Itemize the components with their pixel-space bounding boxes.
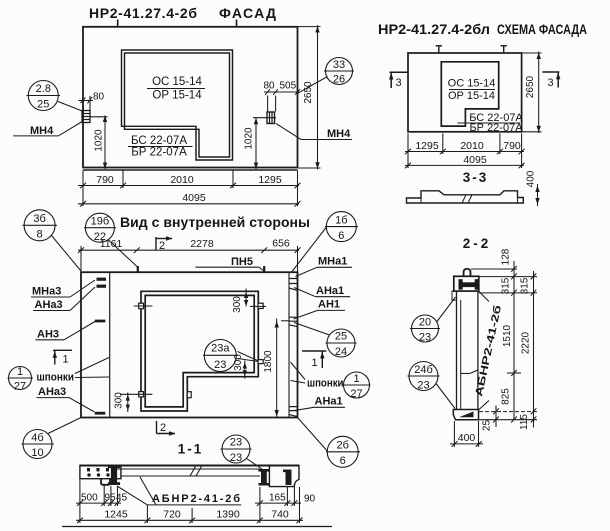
svg-text:3б: 3б bbox=[33, 213, 45, 225]
svg-text:БР 22-07А: БР 22-07А bbox=[131, 147, 187, 159]
svg-text:27: 27 bbox=[350, 388, 362, 400]
svg-text:АН1: АН1 bbox=[318, 299, 340, 311]
svg-text:1390: 1390 bbox=[216, 509, 240, 521]
svg-text:10: 10 bbox=[31, 447, 43, 459]
svg-text:300: 300 bbox=[232, 296, 243, 313]
svg-text:45: 45 bbox=[116, 493, 128, 504]
svg-text:1-1: 1-1 bbox=[178, 442, 204, 457]
svg-text:23: 23 bbox=[214, 359, 226, 371]
svg-text:20: 20 bbox=[419, 317, 431, 329]
svg-text:2010: 2010 bbox=[170, 174, 194, 186]
svg-text:790: 790 bbox=[96, 174, 114, 186]
svg-text:Вид с внутренней стороны: Вид с внутренней стороны bbox=[120, 214, 310, 230]
svg-text:505: 505 bbox=[280, 81, 297, 92]
svg-text:1020: 1020 bbox=[244, 127, 255, 150]
svg-text:6: 6 bbox=[338, 230, 344, 242]
svg-text:23: 23 bbox=[230, 452, 242, 464]
svg-text:1б: 1б bbox=[335, 215, 347, 227]
svg-text:шпонки: шпонки bbox=[37, 372, 75, 384]
svg-text:790: 790 bbox=[503, 140, 521, 152]
svg-text:315: 315 bbox=[501, 277, 512, 294]
svg-text:656: 656 bbox=[272, 238, 290, 250]
svg-text:90: 90 bbox=[304, 494, 316, 505]
svg-text:1: 1 bbox=[353, 373, 359, 385]
svg-text:НР2-41.27.4-2бл: НР2-41.27.4-2бл bbox=[378, 21, 490, 37]
svg-text:400: 400 bbox=[526, 170, 537, 187]
svg-text:3-3: 3-3 bbox=[463, 170, 489, 185]
svg-text:СХЕМА ФАСАДА: СХЕМА ФАСАДА bbox=[497, 21, 587, 37]
svg-text:НР2-41.27.4-2б: НР2-41.27.4-2б bbox=[89, 5, 197, 21]
svg-text:1: 1 bbox=[17, 366, 23, 378]
svg-text:95: 95 bbox=[105, 493, 117, 504]
svg-text:2278: 2278 bbox=[190, 238, 214, 250]
svg-text:300: 300 bbox=[114, 392, 125, 409]
svg-text:2650: 2650 bbox=[525, 75, 536, 98]
svg-text:2010: 2010 bbox=[460, 140, 484, 152]
svg-text:1245: 1245 bbox=[104, 509, 128, 521]
svg-text:1295: 1295 bbox=[258, 174, 282, 186]
svg-text:МНа3: МНа3 bbox=[32, 286, 61, 298]
svg-text:МН4: МН4 bbox=[30, 125, 54, 137]
svg-text:4095: 4095 bbox=[463, 154, 487, 166]
svg-text:2: 2 bbox=[160, 422, 166, 434]
svg-text:1295: 1295 bbox=[415, 140, 439, 152]
svg-text:24: 24 bbox=[335, 346, 347, 358]
svg-text:1020: 1020 bbox=[94, 129, 105, 152]
svg-text:ПН5: ПН5 bbox=[231, 256, 253, 268]
svg-text:АНа1: АНа1 bbox=[316, 285, 344, 297]
svg-text:3: 3 bbox=[396, 77, 402, 89]
svg-text:АНа3: АНа3 bbox=[38, 386, 66, 398]
svg-text:2220: 2220 bbox=[521, 331, 532, 354]
svg-text:115: 115 bbox=[519, 414, 530, 430]
svg-text:25: 25 bbox=[37, 99, 49, 111]
svg-text:6: 6 bbox=[340, 455, 346, 467]
svg-text:1800: 1800 bbox=[263, 350, 274, 373]
svg-text:825: 825 bbox=[501, 388, 512, 405]
svg-text:1: 1 bbox=[63, 354, 69, 366]
svg-text:23: 23 bbox=[230, 437, 242, 449]
svg-text:АНа1: АНа1 bbox=[315, 396, 343, 408]
svg-text:8: 8 bbox=[37, 229, 43, 241]
svg-text:33: 33 bbox=[333, 59, 345, 71]
svg-text:80: 80 bbox=[264, 81, 276, 92]
svg-text:1: 1 bbox=[312, 357, 318, 369]
svg-text:1510: 1510 bbox=[502, 324, 513, 347]
svg-text:24б: 24б bbox=[414, 364, 433, 376]
svg-text:ФАСАД: ФАСАД bbox=[219, 5, 278, 21]
svg-text:ОР 15-14: ОР 15-14 bbox=[152, 90, 202, 102]
svg-text:шпонки: шпонки bbox=[307, 378, 344, 390]
svg-text:740: 740 bbox=[271, 509, 289, 521]
svg-text:3: 3 bbox=[548, 77, 554, 89]
svg-text:2б: 2б bbox=[336, 440, 348, 452]
svg-text:23: 23 bbox=[417, 380, 429, 392]
svg-text:АН3: АН3 bbox=[37, 329, 59, 341]
svg-text:80: 80 bbox=[93, 92, 105, 103]
svg-text:АБНР2-41-2б: АБНР2-41-2б bbox=[152, 493, 240, 505]
svg-text:23: 23 bbox=[419, 332, 431, 344]
svg-text:2650: 2650 bbox=[303, 81, 314, 104]
svg-text:2-2: 2-2 bbox=[463, 236, 492, 251]
svg-text:25: 25 bbox=[335, 331, 347, 343]
svg-text:19б: 19б bbox=[91, 216, 110, 228]
svg-text:720: 720 bbox=[163, 509, 181, 521]
svg-text:165: 165 bbox=[269, 493, 286, 504]
svg-text:ОС 15-14: ОС 15-14 bbox=[152, 76, 202, 88]
svg-text:МНа1: МНа1 bbox=[318, 256, 347, 268]
svg-text:128: 128 bbox=[501, 248, 512, 265]
svg-text:315: 315 bbox=[520, 277, 531, 294]
svg-text:25: 25 bbox=[482, 420, 493, 432]
svg-text:26: 26 bbox=[333, 74, 345, 86]
svg-text:1161: 1161 bbox=[100, 238, 123, 250]
svg-text:400: 400 bbox=[458, 432, 476, 444]
svg-text:АНа3: АНа3 bbox=[35, 299, 63, 311]
svg-text:2: 2 bbox=[159, 240, 165, 252]
svg-text:4б: 4б bbox=[31, 432, 43, 444]
svg-text:27: 27 bbox=[14, 381, 26, 393]
svg-text:500: 500 bbox=[81, 493, 98, 504]
svg-text:23а: 23а bbox=[211, 343, 230, 355]
svg-text:БР 22-07А: БР 22-07А bbox=[469, 122, 523, 134]
svg-text:ОС 15-14: ОС 15-14 bbox=[448, 78, 496, 90]
svg-text:БС 22-07А: БС 22-07А bbox=[131, 135, 187, 147]
svg-text:МН4: МН4 bbox=[327, 128, 351, 140]
svg-text:2.8: 2.8 bbox=[36, 83, 51, 95]
svg-text:ОР 15-14: ОР 15-14 bbox=[448, 90, 495, 102]
svg-text:4095: 4095 bbox=[182, 192, 206, 204]
